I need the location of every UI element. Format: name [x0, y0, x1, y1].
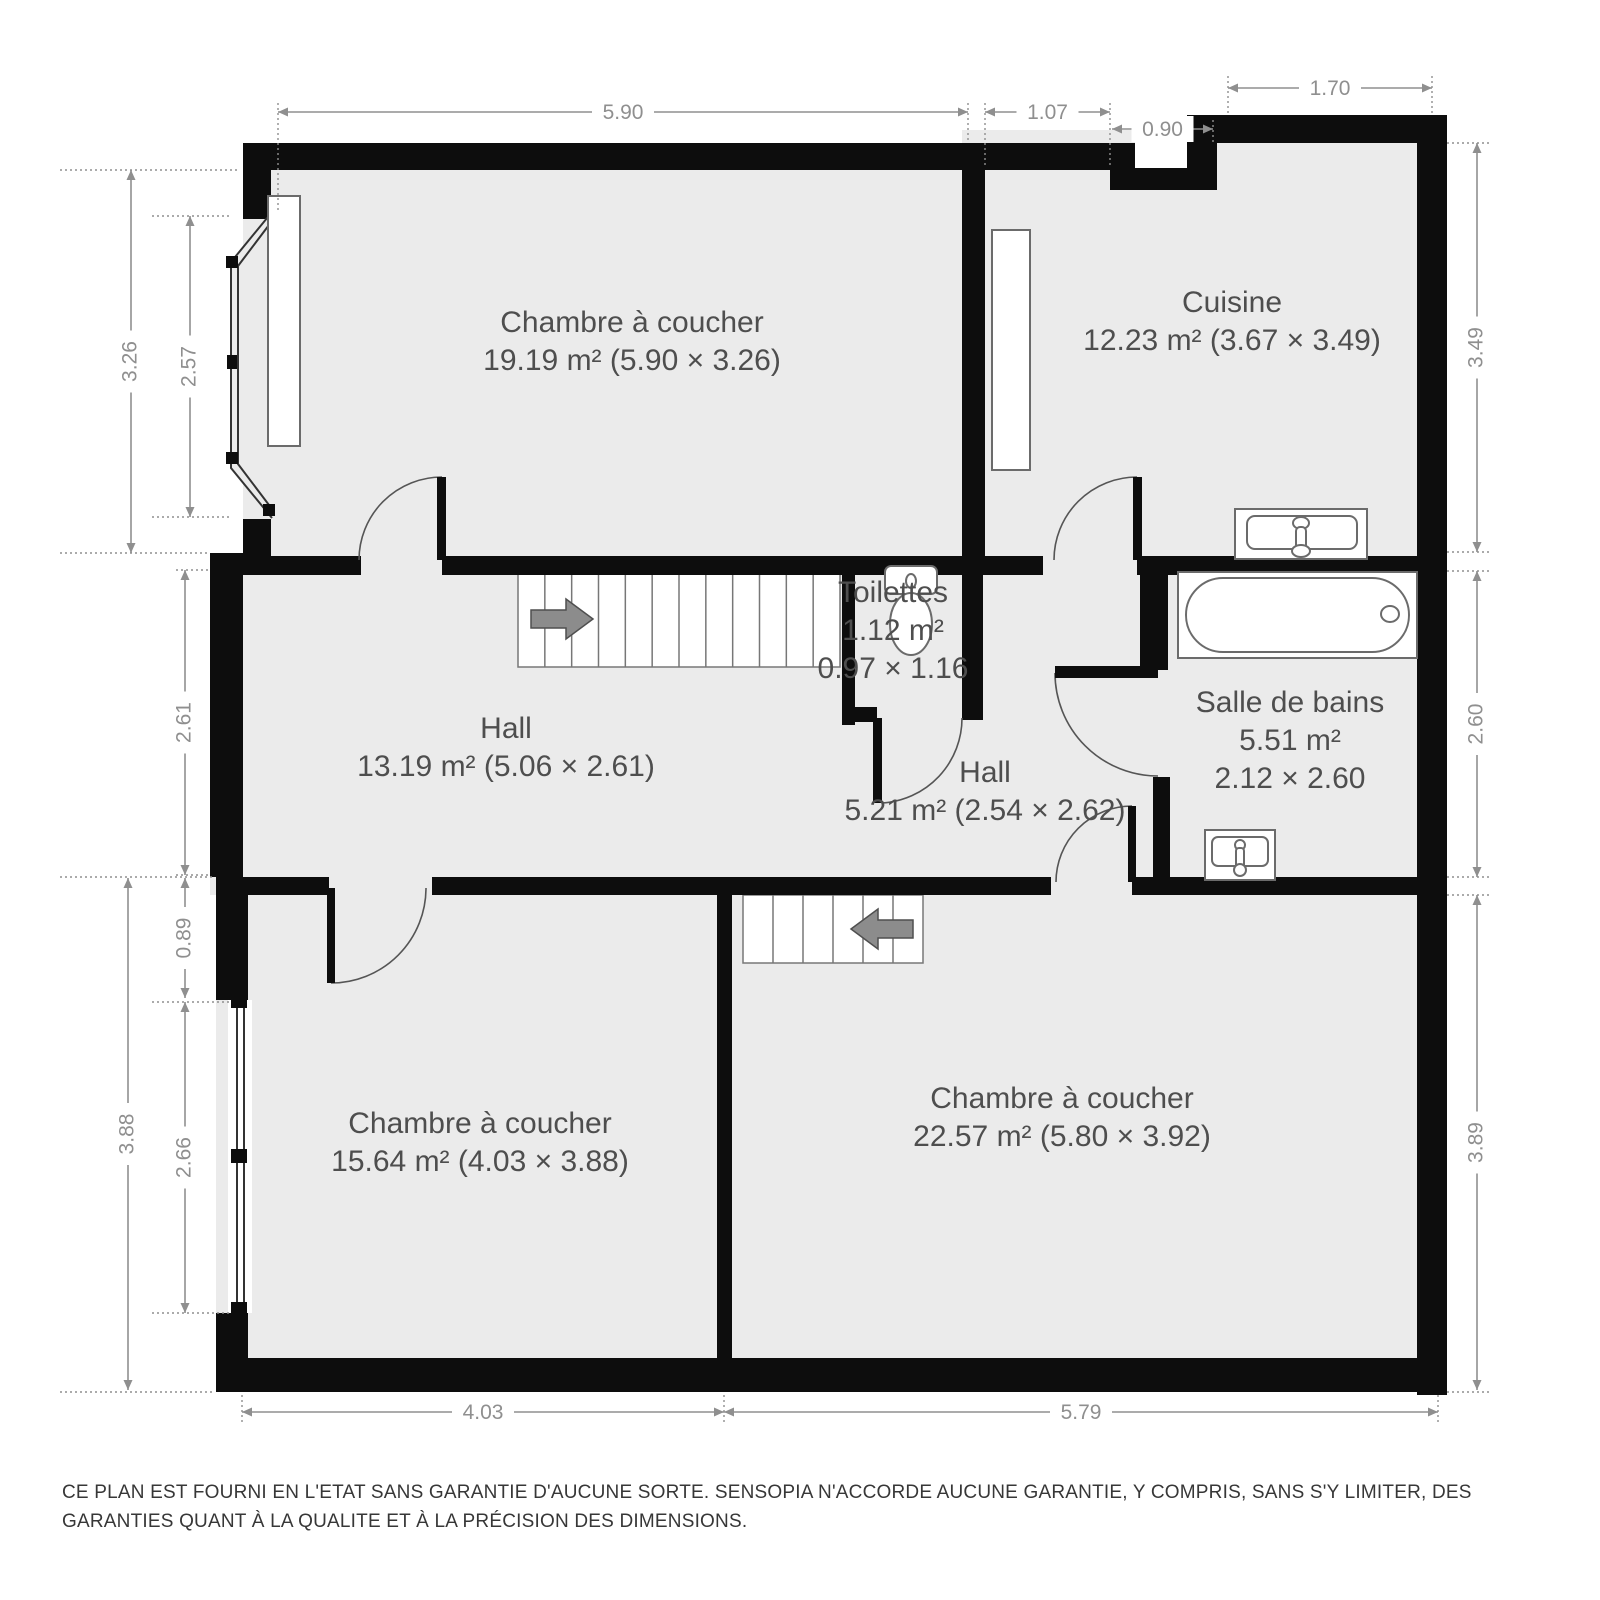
room-label-hall-main: Hall	[480, 712, 532, 745]
dimension-arrow	[278, 108, 288, 117]
window-mullion	[226, 452, 238, 464]
dimension-label: 3.26	[119, 341, 142, 382]
dimension-arrow	[181, 570, 190, 580]
dimension-label: 3.88	[116, 1114, 139, 1155]
kitchen-counter-icon	[992, 230, 1030, 470]
room-label-cuisine: Cuisine	[1182, 286, 1282, 319]
bathroom-sink-faucet-base-icon	[1234, 864, 1246, 876]
room-label-cuisine: 12.23 m² (3.67 × 3.49)	[1083, 324, 1381, 357]
dimension-arrow	[181, 878, 190, 888]
disclaimer-text: CE PLAN EST FOURNI EN L'ETAT SANS GARANT…	[62, 1479, 1474, 1536]
wall	[962, 575, 983, 720]
dimension-arrow	[181, 865, 190, 875]
dimension-arrow	[124, 1380, 133, 1390]
dimension-label: 2.66	[173, 1137, 196, 1178]
room-label-toilettes: 0.97 × 1.16	[818, 652, 969, 685]
dimension-arrow	[127, 543, 136, 553]
window-sill-icon	[268, 196, 300, 446]
dimension-arrow	[714, 1408, 724, 1417]
wall	[842, 707, 877, 722]
room-label-bedroom-bottom-right: Chambre à coucher	[930, 1082, 1193, 1115]
room-label-salle-de-bains: 2.12 × 2.60	[1215, 762, 1366, 795]
wall	[1217, 115, 1447, 143]
dimension-label: 5.90	[603, 101, 644, 124]
wall	[216, 1358, 1447, 1392]
kitchen-sink-faucet-base-icon	[1292, 545, 1310, 557]
room-label-hall-small: Hall	[959, 756, 1011, 789]
wall	[1417, 115, 1447, 1395]
dimension-arrow	[181, 988, 190, 998]
dimension-arrow	[186, 507, 195, 517]
dimension-label: 1.07	[1027, 101, 1068, 124]
dimension-arrow	[724, 1408, 734, 1417]
wall	[717, 877, 732, 1392]
room-label-toilettes: Toilettes	[838, 576, 948, 609]
dimension-arrow	[1428, 1408, 1438, 1417]
dimension-label: 0.90	[1142, 118, 1183, 141]
dimension-label: 2.61	[173, 702, 196, 743]
dimension-arrow	[985, 108, 995, 117]
cuisine-door-leaf	[1133, 477, 1142, 560]
floor-plan-drawing: Chambre à coucher19.19 m² (5.90 × 3.26)C…	[0, 0, 1600, 1600]
room-label-hall-small: 5.21 m² (2.54 × 2.62)	[845, 794, 1126, 827]
window-mullion	[226, 256, 238, 268]
wall	[432, 877, 1051, 895]
window-mullion	[231, 1302, 247, 1314]
dimension-label: 1.70	[1310, 77, 1351, 100]
floor-plan-page: Chambre à coucher19.19 m² (5.90 × 3.26)C…	[0, 0, 1600, 1600]
dimension-label: 2.60	[1465, 704, 1488, 745]
window-mullion	[263, 504, 275, 516]
dimension-label: 2.57	[178, 346, 201, 387]
wall	[210, 556, 361, 575]
dimension-label: 3.89	[1465, 1122, 1488, 1163]
wall	[216, 877, 329, 895]
wall	[216, 877, 248, 1000]
wall	[210, 553, 243, 877]
dimension-arrow	[1473, 542, 1482, 552]
dimension-label: 5.79	[1061, 1401, 1102, 1424]
dimension-arrow	[181, 1303, 190, 1313]
room-label-bedroom-bottom-left: 15.64 m² (4.03 × 3.88)	[331, 1145, 629, 1178]
dimension-arrow	[242, 1408, 252, 1417]
bathtub-drain-icon	[1381, 606, 1399, 622]
room-label-bedroom-bottom-left: Chambre à coucher	[348, 1107, 611, 1140]
room-label-salle-de-bains: Salle de bains	[1196, 686, 1384, 719]
bedroom-bottom-right-door-leaf	[1128, 806, 1136, 882]
dimension-arrow	[181, 1002, 190, 1012]
dimension-arrow	[1473, 143, 1482, 153]
room-label-hall-main: 13.19 m² (5.06 × 2.61)	[357, 750, 655, 783]
dimension-arrow	[1100, 108, 1110, 117]
wall	[442, 556, 1043, 575]
bathroom-door-leaf	[1055, 666, 1158, 678]
wall	[243, 143, 1135, 170]
room-label-bedroom-bottom-right: 22.57 m² (5.80 × 3.92)	[913, 1120, 1211, 1153]
dimension-arrow	[186, 216, 195, 226]
dimension-arrow	[124, 878, 133, 888]
dimension-arrow	[1228, 84, 1238, 93]
dimension-arrow	[1473, 867, 1482, 877]
bedroom-top-door-leaf	[437, 477, 446, 560]
wall	[216, 1313, 248, 1392]
wall	[1140, 556, 1168, 670]
bathtub-inner-icon	[1186, 578, 1409, 652]
toilettes-door-leaf	[873, 718, 882, 803]
dimension-label: 0.89	[173, 918, 196, 959]
room-label-bedroom-top: 19.19 m² (5.90 × 3.26)	[483, 344, 781, 377]
wall	[1153, 777, 1170, 880]
wall	[962, 143, 985, 575]
window-mullion	[227, 355, 237, 369]
dimension-arrow	[1473, 895, 1482, 905]
window-mullion	[231, 996, 247, 1008]
room-label-toilettes: 1.12 m²	[842, 614, 944, 647]
dimension-arrow	[1422, 84, 1432, 93]
dimension-arrow	[127, 170, 136, 180]
wall	[1132, 877, 1447, 895]
window-mullion	[231, 1149, 247, 1163]
dimension-label: 3.49	[1465, 327, 1488, 368]
bedroom-bottom-left-door-leaf	[327, 888, 335, 983]
dimension-label: 4.03	[463, 1401, 504, 1424]
dimension-arrow	[1473, 1380, 1482, 1390]
dimension-arrow	[958, 108, 968, 117]
room-label-salle-de-bains: 5.51 m²	[1239, 724, 1341, 757]
room-label-bedroom-top: Chambre à coucher	[500, 306, 763, 339]
dimension-arrow	[1473, 571, 1482, 581]
exterior-mask	[1135, 138, 1187, 169]
